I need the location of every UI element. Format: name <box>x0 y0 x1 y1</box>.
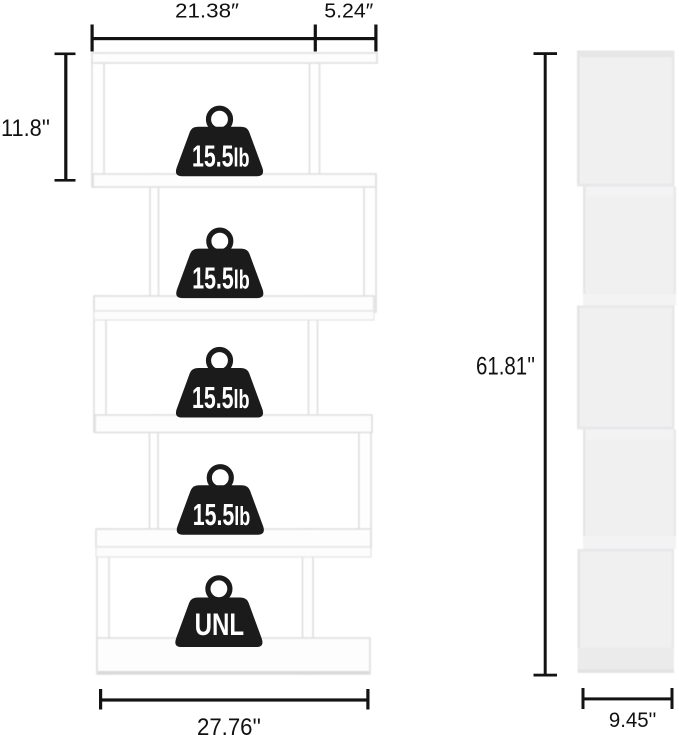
svg-text:15.5lb: 15.5lb <box>192 261 250 296</box>
svg-text:UNL: UNL <box>195 606 245 642</box>
svg-text:27.76'': 27.76'' <box>197 714 261 735</box>
svg-text:15.5lb: 15.5lb <box>193 497 251 532</box>
svg-text:5.24″: 5.24″ <box>324 1 373 23</box>
svg-text:15.5lb: 15.5lb <box>192 380 250 415</box>
svg-text:11.8'': 11.8'' <box>1 115 50 142</box>
svg-text:61.81'': 61.81'' <box>476 353 535 381</box>
svg-text:15.5lb: 15.5lb <box>192 139 250 174</box>
svg-text:21.38″: 21.38″ <box>175 1 239 23</box>
svg-text:9.45'': 9.45'' <box>609 709 657 732</box>
